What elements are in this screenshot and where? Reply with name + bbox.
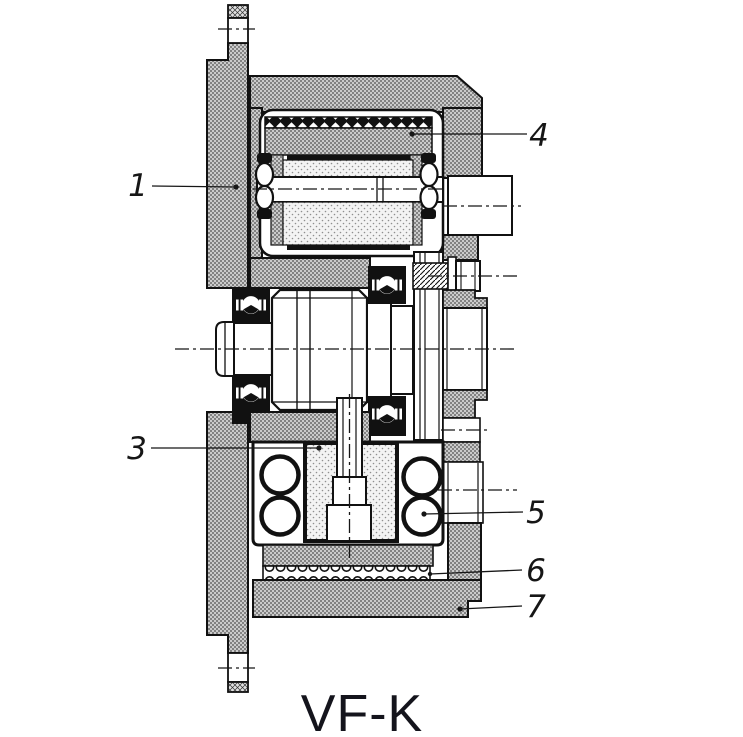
- motor-housing-top-band: [250, 76, 482, 112]
- bottom-boss-cap: [228, 682, 248, 692]
- leader-dot-1: [233, 184, 238, 189]
- rotor-core-upper: [283, 160, 413, 177]
- callout-label-7: 7: [526, 589, 546, 625]
- callout-label-3: 3: [127, 431, 147, 467]
- stator-winding-strip: [265, 117, 432, 128]
- hub-extension-outer: [367, 298, 391, 402]
- leader-dot-3: [316, 445, 321, 450]
- callout-label-6: 6: [526, 553, 546, 589]
- hub-extension-inner: [391, 306, 413, 394]
- gearcase-mid-band: [250, 258, 370, 288]
- gearcase-bottom-outer-band: [253, 580, 481, 617]
- rotor-core-lower: [283, 202, 413, 245]
- leader-dot-7: [457, 606, 462, 611]
- motor-housing-right-wall-upper: [443, 108, 482, 178]
- motor-internals: [256, 117, 443, 250]
- seal-chain-strip: [263, 566, 430, 580]
- leader-line-7: [460, 606, 522, 609]
- top-boss-hole: [228, 18, 248, 43]
- worm-wheel-hub: [272, 290, 367, 410]
- leader-dot-6: [428, 572, 432, 576]
- technical-drawing: 1 3 4 5 6 7 VF-K: [0, 0, 743, 737]
- stator-core: [265, 128, 432, 155]
- callout-label-1: 1: [128, 168, 148, 204]
- drawing-canvas: 1 3 4 5 6 7 VF-K: [0, 0, 743, 737]
- callout-label-4: 4: [529, 118, 549, 154]
- flange-ring-bottom: [443, 390, 487, 418]
- drawing-caption: VF-K: [301, 685, 423, 737]
- flange-ring-top: [443, 290, 487, 308]
- leader-dot-4: [409, 131, 414, 136]
- rotor-bar-lower: [287, 245, 410, 250]
- rotor-end-ring-left-lower: [271, 202, 283, 245]
- leader-dot-5: [421, 511, 426, 516]
- gearcase-bottom-inner-band: [263, 545, 433, 566]
- flange-plate-upper: [207, 43, 248, 288]
- flange-lower-ring: [443, 442, 480, 462]
- top-boss-cap: [228, 5, 248, 18]
- callout-label-5: 5: [526, 495, 546, 531]
- rotor-bar-upper: [287, 155, 410, 161]
